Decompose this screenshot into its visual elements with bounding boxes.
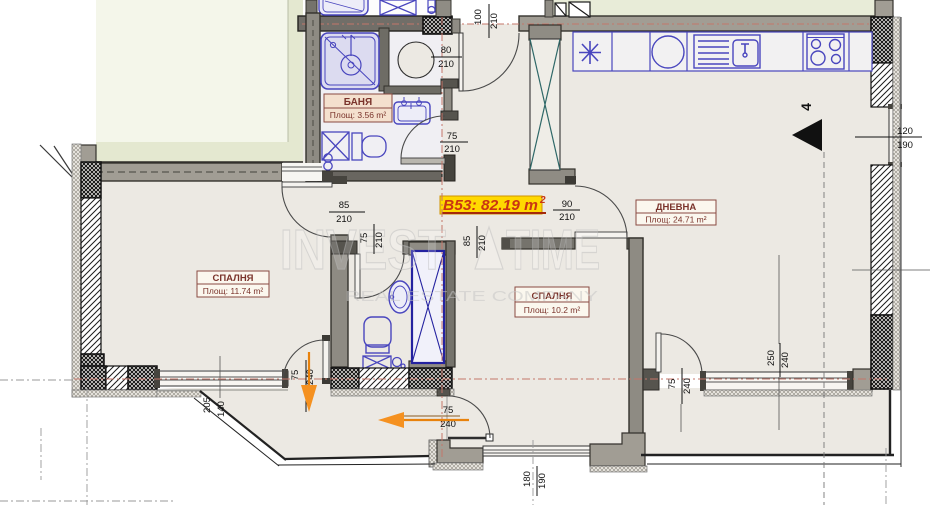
- svg-text:240: 240: [305, 369, 316, 385]
- svg-text:75: 75: [443, 405, 454, 416]
- svg-text:INVEST: INVEST: [280, 218, 446, 282]
- svg-text:240: 240: [682, 378, 693, 394]
- svg-text:75: 75: [447, 131, 458, 142]
- svg-text:85: 85: [462, 236, 473, 247]
- svg-text:REAL ESTATE COMPANY: REAL ESTATE COMPANY: [345, 288, 598, 305]
- svg-text:СПАЛНЯ: СПАЛНЯ: [212, 273, 253, 284]
- svg-text:120: 120: [897, 126, 913, 137]
- svg-text:85: 85: [339, 200, 350, 211]
- svg-text:БАНЯ: БАНЯ: [344, 97, 372, 108]
- svg-text:210: 210: [444, 144, 460, 155]
- svg-text:Площ: 3.56 m²: Площ: 3.56 m²: [330, 110, 387, 120]
- svg-text:100: 100: [473, 9, 484, 25]
- svg-text:B53: 82.19 m: B53: 82.19 m: [443, 197, 538, 214]
- svg-text:75: 75: [290, 370, 301, 381]
- svg-text:Площ: 11.74 m²: Площ: 11.74 m²: [203, 286, 264, 296]
- svg-text:205: 205: [202, 397, 213, 413]
- svg-text:210: 210: [489, 13, 500, 29]
- svg-text:90: 90: [562, 199, 573, 210]
- svg-text:190: 190: [897, 140, 913, 151]
- svg-text:75: 75: [359, 233, 370, 244]
- svg-text:80: 80: [441, 45, 452, 56]
- svg-text:140: 140: [216, 401, 227, 417]
- svg-text:2: 2: [539, 195, 546, 206]
- svg-text:Площ: 24.71 m²: Площ: 24.71 m²: [645, 215, 706, 225]
- svg-text:250: 250: [766, 350, 777, 366]
- svg-text:210: 210: [559, 212, 575, 223]
- svg-text:75: 75: [667, 379, 678, 390]
- svg-text:ДНЕВНА: ДНЕВНА: [656, 202, 697, 213]
- svg-text:TIME: TIME: [506, 218, 600, 282]
- svg-text:210: 210: [477, 235, 488, 251]
- svg-text:240: 240: [780, 352, 791, 368]
- svg-text:180: 180: [522, 471, 533, 487]
- svg-text:Площ: 10.2 m²: Площ: 10.2 m²: [524, 305, 581, 315]
- svg-text:190: 190: [537, 473, 548, 489]
- svg-text:4: 4: [798, 103, 814, 111]
- svg-text:210: 210: [336, 214, 352, 225]
- svg-text:210: 210: [374, 232, 385, 248]
- svg-text:210: 210: [438, 59, 454, 70]
